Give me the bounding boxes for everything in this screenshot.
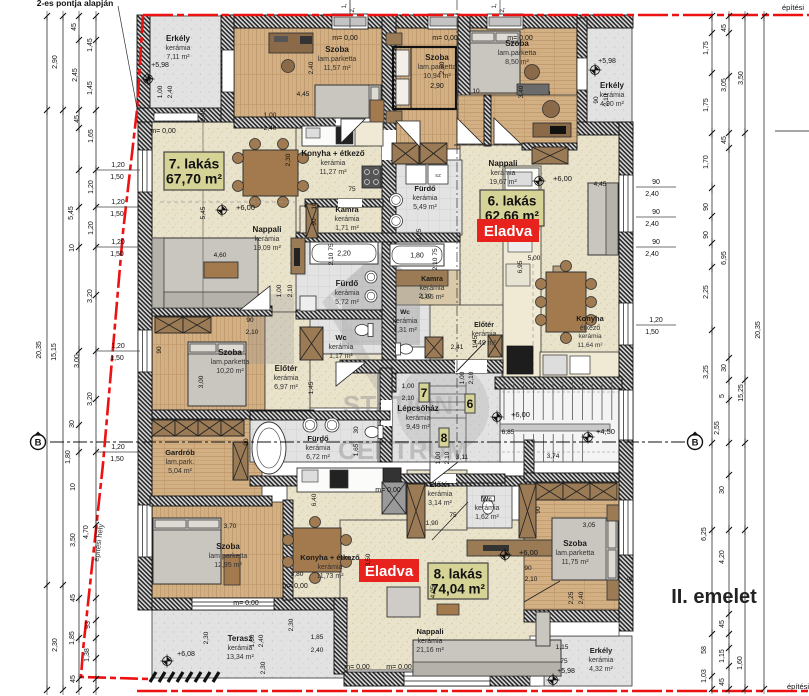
svg-text:2,40: 2,40: [578, 591, 585, 604]
svg-text:m= 0,00: m= 0,00: [375, 487, 401, 494]
svg-text:8: 8: [441, 431, 448, 445]
svg-text:1,20: 1,20: [649, 317, 663, 324]
svg-text:1,31 m²: 1,31 m²: [393, 327, 417, 334]
svg-text:74,04 m²: 74,04 m²: [431, 582, 486, 597]
svg-text:45: 45: [70, 675, 77, 683]
svg-text:1,45: 1,45: [308, 381, 315, 394]
svg-text:m= 0,00: m= 0,00: [507, 35, 533, 42]
svg-text:8. lakás: 8. lakás: [434, 567, 483, 582]
svg-text:90: 90: [524, 565, 532, 572]
svg-text:5,45: 5,45: [200, 206, 207, 219]
svg-text:2,30: 2,30: [260, 661, 267, 674]
svg-text:1,50: 1,50: [110, 251, 124, 258]
svg-text:6,85: 6,85: [502, 429, 515, 436]
svg-text:90: 90: [703, 231, 710, 239]
svg-text:Előtér: Előtér: [275, 364, 298, 373]
svg-text:kerámia: kerámia: [329, 344, 354, 351]
svg-text:Szoba: Szoba: [425, 53, 449, 62]
svg-text:3,20: 3,20: [87, 392, 94, 406]
svg-text:7,11 m²: 7,11 m²: [166, 54, 190, 61]
svg-text:Szoba: Szoba: [563, 539, 587, 548]
svg-text:1,: 1,: [342, 3, 348, 8]
svg-text:1,80: 1,80: [65, 450, 72, 464]
svg-text:3,50: 3,50: [70, 533, 77, 547]
svg-text:3,70: 3,70: [224, 523, 237, 530]
svg-text:30: 30: [353, 426, 360, 434]
svg-text:6,25: 6,25: [701, 527, 708, 541]
svg-text:+5,98: +5,98: [151, 62, 169, 69]
svg-text:m= 0,00: m= 0,00: [386, 664, 412, 671]
svg-text:7: 7: [421, 386, 428, 400]
svg-text:1,00: 1,00: [157, 85, 164, 98]
svg-text:4,20: 4,20: [719, 550, 726, 564]
svg-text:2,30: 2,30: [285, 153, 292, 166]
svg-text:45: 45: [719, 678, 726, 686]
svg-text:1,80: 1,80: [410, 253, 424, 260]
svg-text:58: 58: [701, 646, 708, 654]
svg-text:kerámia: kerámia: [255, 236, 280, 243]
svg-text:kerámia: kerámia: [406, 415, 431, 422]
svg-text:kerámia: kerámia: [475, 505, 500, 512]
svg-text:kerámia: kerámia: [335, 216, 360, 223]
svg-text:30: 30: [69, 420, 76, 428]
svg-text:75: 75: [432, 248, 439, 256]
svg-text:11,27 m²: 11,27 m²: [319, 169, 347, 176]
svg-text:3,05: 3,05: [583, 522, 596, 529]
svg-text:6,95: 6,95: [721, 251, 728, 265]
svg-text:90: 90: [535, 506, 542, 514]
svg-text:kerámia: kerámia: [413, 195, 438, 202]
svg-text:9,49 m²: 9,49 m²: [406, 424, 430, 431]
svg-text:Nappali: Nappali: [253, 225, 282, 234]
svg-text:Nappali: Nappali: [489, 159, 518, 168]
svg-text:II. emelet: II. emelet: [671, 586, 757, 608]
svg-text:10: 10: [69, 244, 76, 252]
svg-text:21,16 m²: 21,16 m²: [416, 647, 444, 654]
svg-text:2,40: 2,40: [308, 61, 315, 74]
svg-text:m= 0,00: m= 0,00: [282, 583, 308, 590]
svg-text:2,25: 2,25: [568, 591, 575, 604]
svg-text:lam.parketta: lam.parketta: [318, 56, 357, 63]
svg-text:3,80: 3,80: [291, 571, 304, 578]
svg-text:45: 45: [719, 620, 726, 628]
svg-text:Kamra: Kamra: [335, 205, 359, 214]
svg-text:3,50: 3,50: [365, 553, 372, 566]
svg-text:2,90: 2,90: [430, 83, 444, 90]
svg-text:45: 45: [74, 115, 81, 123]
svg-text:3,74: 3,74: [547, 453, 560, 460]
svg-text:1,75: 1,75: [703, 41, 710, 55]
svg-text:2,20: 2,20: [337, 251, 351, 258]
svg-text:1,20: 1,20: [88, 180, 95, 194]
svg-text:m= 0,00: m= 0,00: [233, 600, 259, 607]
svg-text:+5,98: +5,98: [598, 58, 616, 65]
svg-text:1,00: 1,00: [435, 451, 442, 464]
svg-text:3,00: 3,00: [198, 375, 205, 388]
svg-text:Fürdő: Fürdő: [307, 434, 329, 443]
svg-text:45: 45: [70, 594, 77, 602]
svg-text:20,35: 20,35: [36, 341, 43, 359]
svg-text:kerámia: kerámia: [420, 285, 445, 292]
svg-text:1,15: 1,15: [719, 649, 726, 663]
svg-text:45: 45: [71, 23, 78, 31]
svg-text:Szoba: Szoba: [325, 45, 349, 54]
svg-text:1,00: 1,00: [276, 284, 283, 297]
svg-text:3,00: 3,00: [74, 354, 81, 368]
svg-text:építési hely: építési hely: [787, 682, 809, 691]
svg-text:30: 30: [719, 486, 726, 494]
svg-text:2,40: 2,40: [645, 191, 659, 198]
svg-text:lam.parketta: lam.parketta: [498, 50, 537, 57]
svg-text:3,05: 3,05: [416, 228, 423, 241]
svg-text:kerámia: kerámia: [335, 290, 360, 297]
svg-text:2,45: 2,45: [72, 68, 79, 82]
svg-text:B: B: [692, 438, 699, 449]
svg-text:2,60: 2,60: [439, 61, 446, 74]
svg-text:Fürdő: Fürdő: [336, 279, 359, 288]
svg-text:10: 10: [70, 483, 77, 491]
svg-text:1,71 m²: 1,71 m²: [335, 225, 359, 232]
svg-text:90: 90: [652, 209, 660, 216]
svg-text:2,10: 2,10: [402, 395, 415, 402]
svg-text:6,97 m²: 6,97 m²: [274, 384, 298, 391]
svg-text:11,75 m²: 11,75 m²: [561, 559, 589, 566]
svg-text:2,10: 2,10: [525, 576, 538, 583]
svg-text:Konyha + étkező: Konyha + étkező: [300, 553, 360, 562]
svg-text:1,45: 1,45: [87, 81, 94, 95]
svg-text:Gardrób: Gardrób: [165, 448, 195, 457]
svg-text:1,20: 1,20: [111, 199, 125, 206]
svg-text:1,00: 1,00: [264, 112, 277, 119]
svg-text:6: 6: [467, 397, 474, 411]
svg-text:10,94 m²: 10,94 m²: [423, 73, 451, 80]
svg-text:4,45: 4,45: [297, 91, 310, 98]
svg-text:2,10: 2,10: [468, 371, 475, 384]
svg-text:5,45: 5,45: [68, 206, 75, 220]
svg-text:1,38: 1,38: [84, 648, 91, 662]
svg-text:étkező: étkező: [580, 325, 601, 332]
svg-text:1,45: 1,45: [472, 335, 479, 348]
svg-text:45: 45: [627, 576, 634, 584]
svg-text:Nappali: Nappali: [416, 627, 443, 636]
svg-text:2,40: 2,40: [264, 125, 277, 132]
svg-text:Eladva: Eladva: [365, 563, 414, 580]
svg-text:Szoba: Szoba: [218, 348, 242, 357]
svg-text:75: 75: [348, 186, 356, 193]
svg-text:m= 0,00: m= 0,00: [344, 664, 370, 671]
svg-text:5,49 m²: 5,49 m²: [413, 204, 437, 211]
svg-text:Erkély: Erkély: [166, 34, 191, 43]
svg-text:1,20: 1,20: [111, 343, 125, 350]
svg-text:kerámia: kerámia: [306, 445, 331, 452]
svg-text:1,50: 1,50: [110, 211, 124, 218]
svg-text:+4,50: +4,50: [596, 427, 615, 436]
svg-text:m= 0,00: m= 0,00: [432, 35, 458, 42]
svg-text:Erkély: Erkély: [590, 646, 613, 655]
svg-text:1,75: 1,75: [703, 98, 710, 112]
svg-text:2,40: 2,40: [645, 221, 659, 228]
svg-text:1,60: 1,60: [249, 634, 256, 647]
svg-text:11,57 m²: 11,57 m²: [323, 65, 351, 72]
svg-text:1,20: 1,20: [111, 239, 125, 246]
svg-text:2,30: 2,30: [288, 618, 295, 631]
svg-text:Konyha: Konyha: [576, 314, 604, 323]
svg-text:3,11: 3,11: [456, 454, 469, 461]
svg-text:1,85: 1,85: [311, 634, 324, 641]
svg-text:2,40: 2,40: [645, 251, 659, 258]
svg-text:2,10: 2,10: [603, 93, 610, 106]
svg-text:Wc: Wc: [482, 496, 492, 503]
svg-text:kerámia: kerámia: [166, 45, 191, 52]
svg-text:5,00: 5,00: [528, 255, 541, 262]
svg-text:3,14 m²: 3,14 m²: [428, 500, 452, 507]
svg-text:2,30: 2,30: [203, 631, 210, 644]
svg-text:Wc: Wc: [400, 309, 410, 316]
svg-text:2,10: 2,10: [246, 329, 259, 336]
svg-text:2,90: 2,90: [52, 55, 59, 69]
svg-text:2,40: 2,40: [311, 647, 324, 654]
svg-text:B: B: [35, 438, 42, 449]
svg-text:90: 90: [156, 346, 163, 354]
svg-text:kerámia: kerámia: [318, 564, 343, 571]
svg-text:1,20: 1,20: [88, 221, 95, 235]
svg-text:1,45: 1,45: [87, 38, 94, 52]
svg-text:lam.park.: lam.park.: [166, 459, 195, 466]
svg-text:1,20: 1,20: [111, 162, 125, 169]
svg-text:Wc: Wc: [335, 333, 346, 342]
svg-text:90: 90: [652, 239, 660, 246]
svg-text:kerámia: kerámia: [321, 160, 346, 167]
svg-text:+6,00: +6,00: [236, 203, 255, 212]
svg-text:építési: építési: [782, 3, 804, 12]
svg-text:+6,08: +6,08: [177, 651, 195, 658]
svg-text:19,09 m²: 19,09 m²: [253, 245, 281, 252]
svg-text:1,20: 1,20: [111, 444, 125, 451]
svg-text:1,50: 1,50: [110, 456, 124, 463]
svg-text:SZ: SZ: [435, 173, 441, 178]
svg-text:15,25: 15,25: [738, 384, 745, 402]
svg-text:5,72 m²: 5,72 m²: [335, 299, 359, 306]
svg-text:75: 75: [328, 243, 335, 251]
svg-text:5: 5: [719, 394, 726, 398]
svg-text:6,95: 6,95: [517, 260, 524, 273]
svg-text:2,10: 2,10: [444, 451, 451, 464]
svg-text:2,45: 2,45: [200, 108, 207, 121]
svg-text:2,55: 2,55: [714, 421, 721, 435]
svg-text:90: 90: [243, 438, 250, 446]
svg-text:1,65: 1,65: [353, 443, 360, 456]
svg-text:2,: 2,: [500, 7, 506, 12]
svg-text:Fürdő: Fürdő: [414, 184, 436, 193]
svg-text:+5,98: +5,98: [557, 668, 575, 675]
svg-text:1,03: 1,03: [701, 669, 708, 683]
svg-text:20,35: 20,35: [755, 321, 762, 339]
svg-text:Erkély: Erkély: [600, 81, 625, 90]
svg-text:67,70 m²: 67,70 m²: [166, 171, 222, 187]
svg-text:Szoba: Szoba: [216, 542, 240, 551]
svg-text:+6,00: +6,00: [519, 548, 538, 557]
svg-text:19,67 m²: 19,67 m²: [489, 179, 517, 186]
svg-text:2,10: 2,10: [432, 257, 439, 270]
svg-text:4,05: 4,05: [430, 585, 437, 598]
svg-text:90: 90: [652, 179, 660, 186]
svg-text:kerámia: kerámia: [428, 491, 453, 498]
svg-text:11,64 m²: 11,64 m²: [577, 342, 603, 349]
svg-text:3,25: 3,25: [703, 365, 710, 379]
svg-text:lam.parketta: lam.parketta: [209, 553, 248, 560]
svg-text:2,25: 2,25: [703, 285, 710, 299]
svg-text:3,50: 3,50: [738, 71, 745, 85]
svg-text:lam.parketta: lam.parketta: [418, 64, 457, 71]
svg-text:2,10: 2,10: [328, 252, 335, 265]
svg-text:+6,00: +6,00: [553, 174, 572, 183]
svg-text:10: 10: [311, 202, 318, 210]
svg-text:3,20: 3,20: [87, 289, 94, 303]
svg-text:kerámia: kerámia: [578, 333, 602, 340]
svg-text:lam.parketta: lam.parketta: [556, 550, 595, 557]
svg-text:kerámia: kerámia: [393, 318, 418, 325]
svg-text:1,62 m²: 1,62 m²: [475, 514, 499, 521]
svg-text:Előtér: Előtér: [429, 480, 450, 489]
svg-text:Lépcsőház: Lépcsőház: [397, 404, 438, 413]
svg-text:1,50: 1,50: [645, 329, 659, 336]
svg-text:5,04 m²: 5,04 m²: [168, 468, 192, 475]
svg-text:2,40: 2,40: [167, 85, 174, 98]
svg-text:2,: 2,: [350, 7, 356, 12]
svg-text:3,05: 3,05: [721, 78, 728, 92]
svg-text:2,10: 2,10: [419, 293, 432, 300]
svg-text:75: 75: [449, 512, 457, 519]
svg-text:75: 75: [560, 658, 568, 665]
svg-text:6. lakás: 6. lakás: [488, 194, 537, 209]
svg-text:lam.parketta: lam.parketta: [211, 359, 250, 366]
svg-text:4,45: 4,45: [594, 181, 607, 188]
svg-text:12,95 m²: 12,95 m²: [214, 562, 242, 569]
svg-text:93: 93: [85, 621, 92, 629]
svg-text:2,40: 2,40: [258, 634, 265, 647]
svg-text:kerámia: kerámia: [418, 638, 443, 645]
svg-text:2-es pontja alapján: 2-es pontja alapján: [37, 0, 114, 8]
svg-text:6,72 m²: 6,72 m²: [306, 454, 330, 461]
svg-text:Előtér: Előtér: [474, 322, 494, 329]
svg-text:11,73 m²: 11,73 m²: [316, 573, 344, 580]
svg-text:Kamra: Kamra: [421, 276, 443, 283]
svg-text:2,41: 2,41: [451, 344, 464, 351]
svg-text:kerámia: kerámia: [589, 657, 614, 664]
svg-text:8,50 m²: 8,50 m²: [505, 59, 529, 66]
svg-text:1,90: 1,90: [426, 520, 439, 527]
svg-text:15,15: 15,15: [51, 343, 58, 361]
svg-text:13,34 m²: 13,34 m²: [226, 654, 254, 661]
svg-text:45: 45: [721, 24, 728, 32]
svg-text:4,32 m²: 4,32 m²: [589, 666, 613, 673]
svg-text:1,85: 1,85: [69, 631, 76, 645]
svg-text:1,50: 1,50: [110, 355, 124, 362]
svg-text:1,: 1,: [492, 3, 498, 8]
svg-text:m= 0,00: m= 0,00: [150, 128, 176, 135]
svg-text:10: 10: [472, 88, 480, 95]
svg-text:2,10: 2,10: [287, 284, 294, 297]
svg-text:1,65: 1,65: [88, 129, 95, 143]
svg-text:4,60: 4,60: [214, 252, 227, 259]
svg-text:kerámia: kerámia: [274, 375, 299, 382]
svg-text:1,15: 1,15: [556, 644, 569, 651]
svg-text:1,50: 1,50: [110, 174, 124, 181]
svg-text:Eladva: Eladva: [484, 223, 533, 240]
svg-text:m= 0,00: m= 0,00: [332, 35, 358, 42]
svg-text:1,17 m²: 1,17 m²: [329, 353, 353, 360]
svg-text:90: 90: [246, 317, 254, 324]
svg-text:1,00: 1,00: [459, 371, 466, 384]
svg-text:3,40: 3,40: [518, 85, 525, 98]
svg-text:7. lakás: 7. lakás: [169, 156, 220, 172]
svg-text:90: 90: [593, 96, 600, 104]
svg-text:1,00: 1,00: [402, 383, 415, 390]
svg-text:6,40: 6,40: [311, 493, 318, 506]
svg-text:2,30: 2,30: [52, 638, 59, 652]
svg-text:10,20 m²: 10,20 m²: [216, 368, 244, 375]
svg-text:45: 45: [721, 136, 728, 144]
svg-text:90: 90: [703, 203, 710, 211]
svg-text:1,70: 1,70: [703, 155, 710, 169]
svg-text:+6,00: +6,00: [511, 410, 530, 419]
svg-text:90: 90: [311, 218, 318, 226]
svg-text:30: 30: [721, 364, 728, 372]
svg-text:4,70: 4,70: [83, 525, 90, 539]
svg-text:kerámia: kerámia: [491, 170, 516, 177]
svg-text:Konyha + étkező: Konyha + étkező: [301, 149, 364, 158]
svg-text:1,60: 1,60: [737, 656, 744, 670]
